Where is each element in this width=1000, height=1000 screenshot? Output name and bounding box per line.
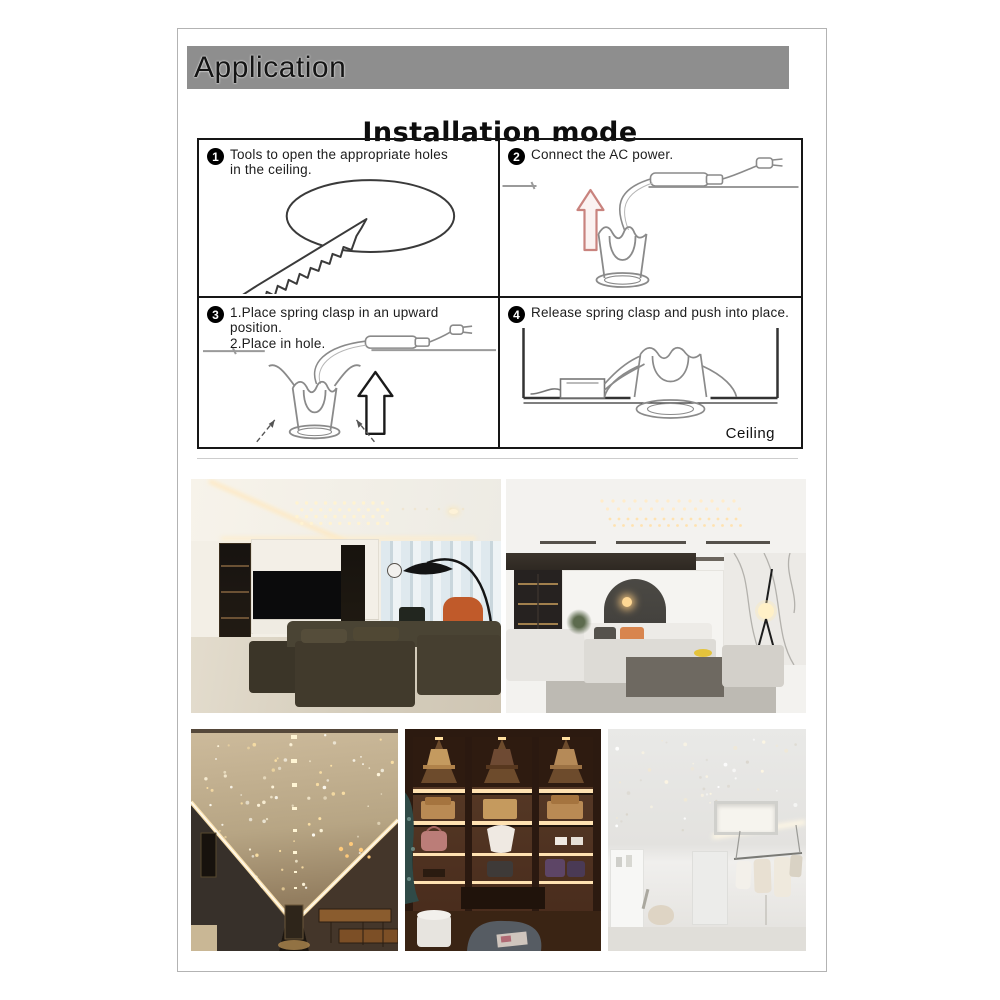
cove-light-left	[191, 802, 289, 917]
step-1-illustration	[199, 176, 498, 294]
ceiling-slot	[540, 541, 596, 544]
star-dots	[195, 730, 394, 898]
door-glow	[278, 940, 310, 950]
wall-clock	[387, 563, 402, 578]
wardrobe-scene	[405, 729, 601, 951]
sofa-module-right	[722, 645, 784, 687]
dining-table	[339, 929, 398, 943]
shelf-items	[421, 795, 585, 877]
magazine	[496, 931, 527, 947]
fruit-bowl	[694, 649, 712, 657]
block-coffee-table	[626, 657, 724, 697]
center-light-column	[291, 735, 297, 889]
downlight-fixture	[597, 227, 649, 287]
photo-corridor-starry-ceiling	[191, 729, 398, 951]
clothes-rack	[726, 825, 806, 937]
hole-saw-tool	[243, 219, 367, 294]
doorway	[692, 851, 728, 925]
sofa-cushion	[353, 627, 399, 641]
purple-bag	[545, 859, 565, 877]
left-wall	[191, 803, 287, 951]
photo-living-room-white-sofa	[506, 479, 806, 713]
niche-wall-light	[622, 597, 632, 607]
divider-rule	[197, 458, 798, 459]
corridor-end	[279, 917, 309, 951]
dining-table	[319, 909, 391, 922]
photo-white-room-starry-ceiling	[608, 729, 806, 951]
hanging-clothes	[735, 855, 802, 897]
step-4-text-line1: Release spring clasp and push into place…	[531, 305, 789, 320]
sofa-cushion	[301, 629, 347, 643]
spring-clasp-left	[269, 365, 295, 386]
step-3-number-badge: 3	[207, 306, 224, 323]
recessed-downlight	[449, 509, 458, 514]
step-2-illustration	[500, 156, 801, 289]
round-stool	[648, 905, 674, 925]
ceiling-slot	[616, 541, 686, 544]
laundry-stool	[417, 910, 451, 947]
lit-shelves	[413, 789, 593, 884]
application-banner-label: Application	[187, 51, 346, 85]
shelf	[221, 591, 249, 593]
bottle	[626, 855, 632, 867]
step-1-number-badge: 1	[207, 148, 224, 165]
tv-screen	[253, 571, 345, 619]
blanket	[467, 921, 541, 951]
led-driver-box	[651, 173, 723, 186]
step-3-cell: 3 1.Place spring clasp in an upward posi…	[199, 298, 500, 447]
application-banner: Application	[187, 46, 789, 89]
shelf	[221, 617, 249, 619]
step-3-text-line1: 1.Place spring clasp in an upward positi…	[230, 305, 490, 336]
photo-living-room-dark-sofa	[191, 479, 501, 713]
ceiling-slot	[706, 541, 770, 544]
bay-divider	[532, 737, 539, 937]
dark-beam	[506, 553, 696, 570]
bottle	[616, 857, 622, 867]
floor	[405, 911, 601, 951]
shelf	[221, 565, 249, 567]
corridor-scene	[191, 729, 398, 951]
display-cabinet-left	[219, 543, 251, 651]
step-1-text-line1: Tools to open the appropriate holes	[230, 147, 448, 162]
installed-downlight	[605, 348, 737, 418]
pot	[487, 861, 513, 877]
step-3-text-line2: 2.Place in hole.	[230, 336, 490, 351]
bay-divider	[465, 737, 472, 937]
upward-arrow	[358, 372, 392, 434]
sofa-seat-right	[417, 635, 501, 695]
pendant-lights	[339, 842, 371, 859]
step-4-cell: 4 Release spring clasp and push into pla…	[500, 298, 801, 447]
step-4-illustration	[500, 320, 801, 428]
wall-window	[201, 833, 216, 877]
hanging-dress	[405, 789, 419, 905]
bench	[461, 887, 545, 909]
step-2-number-badge: 2	[508, 148, 525, 165]
sofa-module-left	[506, 629, 594, 681]
step-4-number-badge: 4	[508, 306, 525, 323]
step-2-cell: 2 Connect the AC power.	[500, 140, 801, 298]
step-2-text-line1: Connect the AC power.	[531, 147, 673, 162]
led-driver-box	[531, 379, 605, 398]
plant	[566, 609, 592, 635]
spring-arm-right	[703, 366, 737, 397]
sofa-seat-left	[295, 641, 415, 707]
white-top	[487, 825, 515, 853]
installation-steps-table: 1 Tools to open the appropriate holes in…	[197, 138, 803, 449]
pink-handbag	[421, 831, 447, 851]
end-door	[285, 905, 303, 939]
step-1-text-line2: in the ceiling.	[230, 162, 448, 177]
product-sheet-page: Application Installation mode 1 Tools to…	[177, 28, 827, 972]
spring-clasp-right	[335, 365, 361, 386]
right-wall	[301, 821, 398, 951]
counter	[191, 925, 217, 951]
photo-wardrobe-closet	[405, 729, 601, 951]
ceiling-label: Ceiling	[726, 425, 775, 442]
cove-light-right	[300, 820, 398, 917]
floor	[608, 927, 806, 951]
step-1-cell: 1 Tools to open the appropriate holes in…	[199, 140, 500, 298]
hat-compartments	[413, 737, 593, 787]
top-edge	[191, 729, 398, 733]
